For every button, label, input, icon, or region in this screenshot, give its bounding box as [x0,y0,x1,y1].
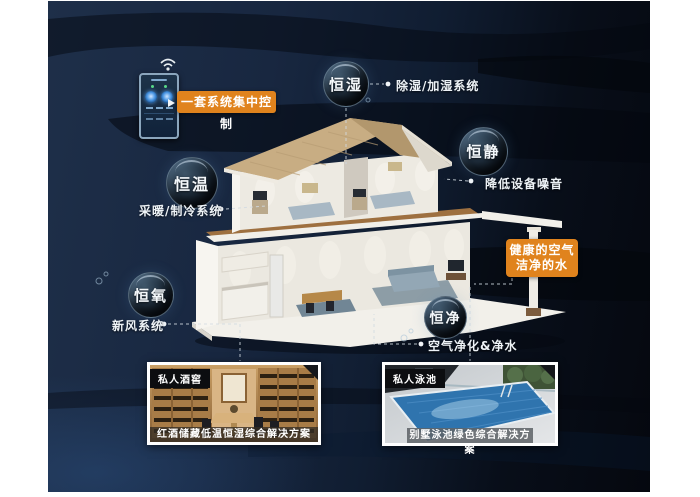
note-air-water-purification: 空气净化&净水 [428,337,517,354]
infographic-canvas: 一套系统集中控制 健康的空气 洁净的水 恒湿 除湿/加湿系统 恒静 降低设备噪音… [0,0,700,497]
health-callout-line1: 健康的空气 [508,243,576,258]
wine-cellar-tag: 私人酒窖 [150,369,210,388]
photo-corner-fold-icon [303,365,318,380]
note-heating-cooling-system: 采暖/制冷系统 [139,202,222,219]
health-callout: 健康的空气 洁净的水 [506,239,578,277]
health-callout-line2: 洁净的水 [508,258,576,273]
controller-readout-row [146,118,173,120]
status-light [151,85,154,88]
pool-photo: 私人泳池 别墅泳池绿色综合解决方案 [382,362,558,446]
note-fresh-air-system: 新风系统 [112,317,164,334]
controller-divider [144,113,174,114]
pool-tag: 私人泳池 [385,369,445,388]
bubble-constant-humidity: 恒湿 [323,61,369,107]
bubble-constant-quiet-label: 恒静 [466,141,500,162]
bubble-constant-temperature-label: 恒温 [174,171,210,195]
note-reduce-equipment-noise: 降低设备噪音 [485,175,563,192]
bubble-constant-humidity-label: 恒湿 [329,74,363,95]
bubble-constant-quiet: 恒静 [459,127,508,176]
wine-cellar-caption: 红酒储藏低温恒湿综合解决方案 [150,427,318,442]
controller-readout-row [146,107,173,109]
control-callout-arrow-icon [168,99,175,107]
photo-corner-fold-icon [540,365,555,380]
bubble-constant-oxygen-label: 恒氧 [134,285,168,306]
pool-caption: 别墅泳池绿色综合解决方案 [407,428,533,443]
wine-cellar-photo: 私人酒窖 红酒储藏低温恒湿综合解决方案 [147,362,321,445]
note-dehumidify-humidify-system: 除湿/加湿系统 [396,77,479,94]
bubble-constant-purity: 恒净 [424,296,467,339]
wifi-icon [158,56,178,72]
controller-status-lights [151,85,167,88]
controller-dial [145,91,157,103]
bubble-constant-oxygen: 恒氧 [128,272,174,318]
status-light [164,85,167,88]
central-control-callout: 一套系统集中控制 [177,91,276,113]
bubble-constant-purity-label: 恒净 [430,308,462,328]
controller-title-bar [151,79,167,81]
